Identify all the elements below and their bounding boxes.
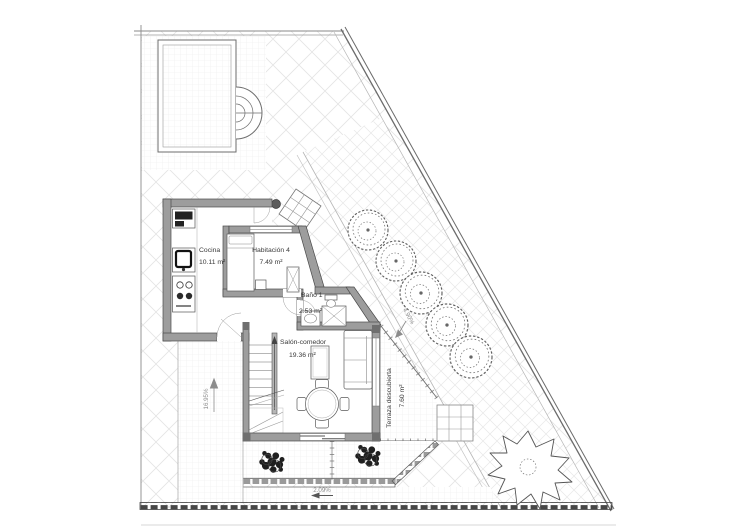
nightstand-icon xyxy=(256,280,267,290)
room-area-habitacion4: 7.49 m² xyxy=(259,259,283,266)
room-label-salon: Salón-comedor xyxy=(280,339,327,346)
room-area-terraza: 7.60 m² xyxy=(399,384,406,408)
room-area-cocina: 10.11 m² xyxy=(199,259,226,266)
pool-area xyxy=(142,36,266,170)
terrace-steps xyxy=(437,405,473,441)
floor-plan-canvas: Cocina 10.11 m² Habitación 4 7.49 m² Bañ… xyxy=(0,0,756,528)
sink-icon xyxy=(173,248,196,272)
chair-icon xyxy=(340,398,349,411)
room-label-cocina: Cocina xyxy=(199,247,220,254)
room-label-bano1: Baño 1 xyxy=(301,292,323,299)
chair-icon xyxy=(316,380,329,389)
room-area-bano1: 2.53 m² xyxy=(299,308,323,315)
fridge-icon xyxy=(173,209,196,228)
sidewalk xyxy=(243,487,499,503)
room-label-habitacion4: Habitación 4 xyxy=(252,247,290,254)
room-area-salon: 19.36 m² xyxy=(289,352,317,359)
ramp-slope-label: 16.95% xyxy=(203,388,210,409)
sofa-icon xyxy=(344,331,372,390)
street-slope-label: 2.09% xyxy=(313,487,331,494)
floor-plan: Cocina 10.11 m² Habitación 4 7.49 m² Bañ… xyxy=(0,0,756,528)
chair-icon xyxy=(297,398,306,411)
room-label-terraza: Terraza descubierta xyxy=(386,368,393,428)
entry-column-icon xyxy=(272,200,281,209)
sliding-door-salon xyxy=(300,434,345,441)
parapet-wall xyxy=(243,479,395,488)
window-bedroom xyxy=(250,227,292,233)
window-salon xyxy=(373,338,380,406)
ramp xyxy=(178,341,243,503)
stove-icon xyxy=(173,276,196,312)
coffee-table-icon xyxy=(311,346,329,379)
